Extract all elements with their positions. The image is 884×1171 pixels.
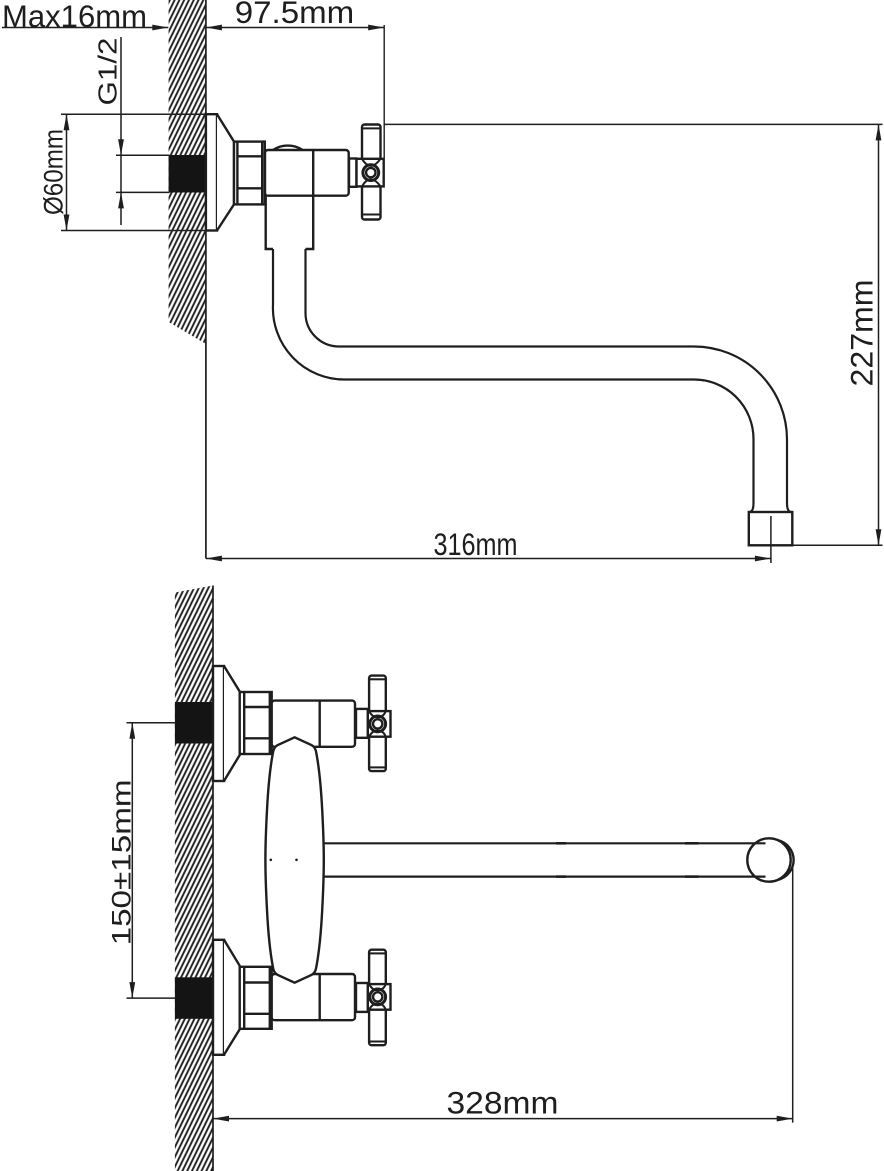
svg-text:G1/2: G1/2 bbox=[95, 38, 123, 106]
svg-text:227mm: 227mm bbox=[844, 280, 880, 387]
svg-text:Ø60mm: Ø60mm bbox=[39, 129, 69, 215]
svg-text:328mm: 328mm bbox=[447, 1085, 559, 1121]
svg-text:97.5mm: 97.5mm bbox=[235, 0, 355, 30]
svg-text:150±15mm: 150±15mm bbox=[107, 779, 137, 945]
svg-text:Max16mm: Max16mm bbox=[2, 0, 147, 34]
svg-text:316mm: 316mm bbox=[434, 526, 518, 562]
